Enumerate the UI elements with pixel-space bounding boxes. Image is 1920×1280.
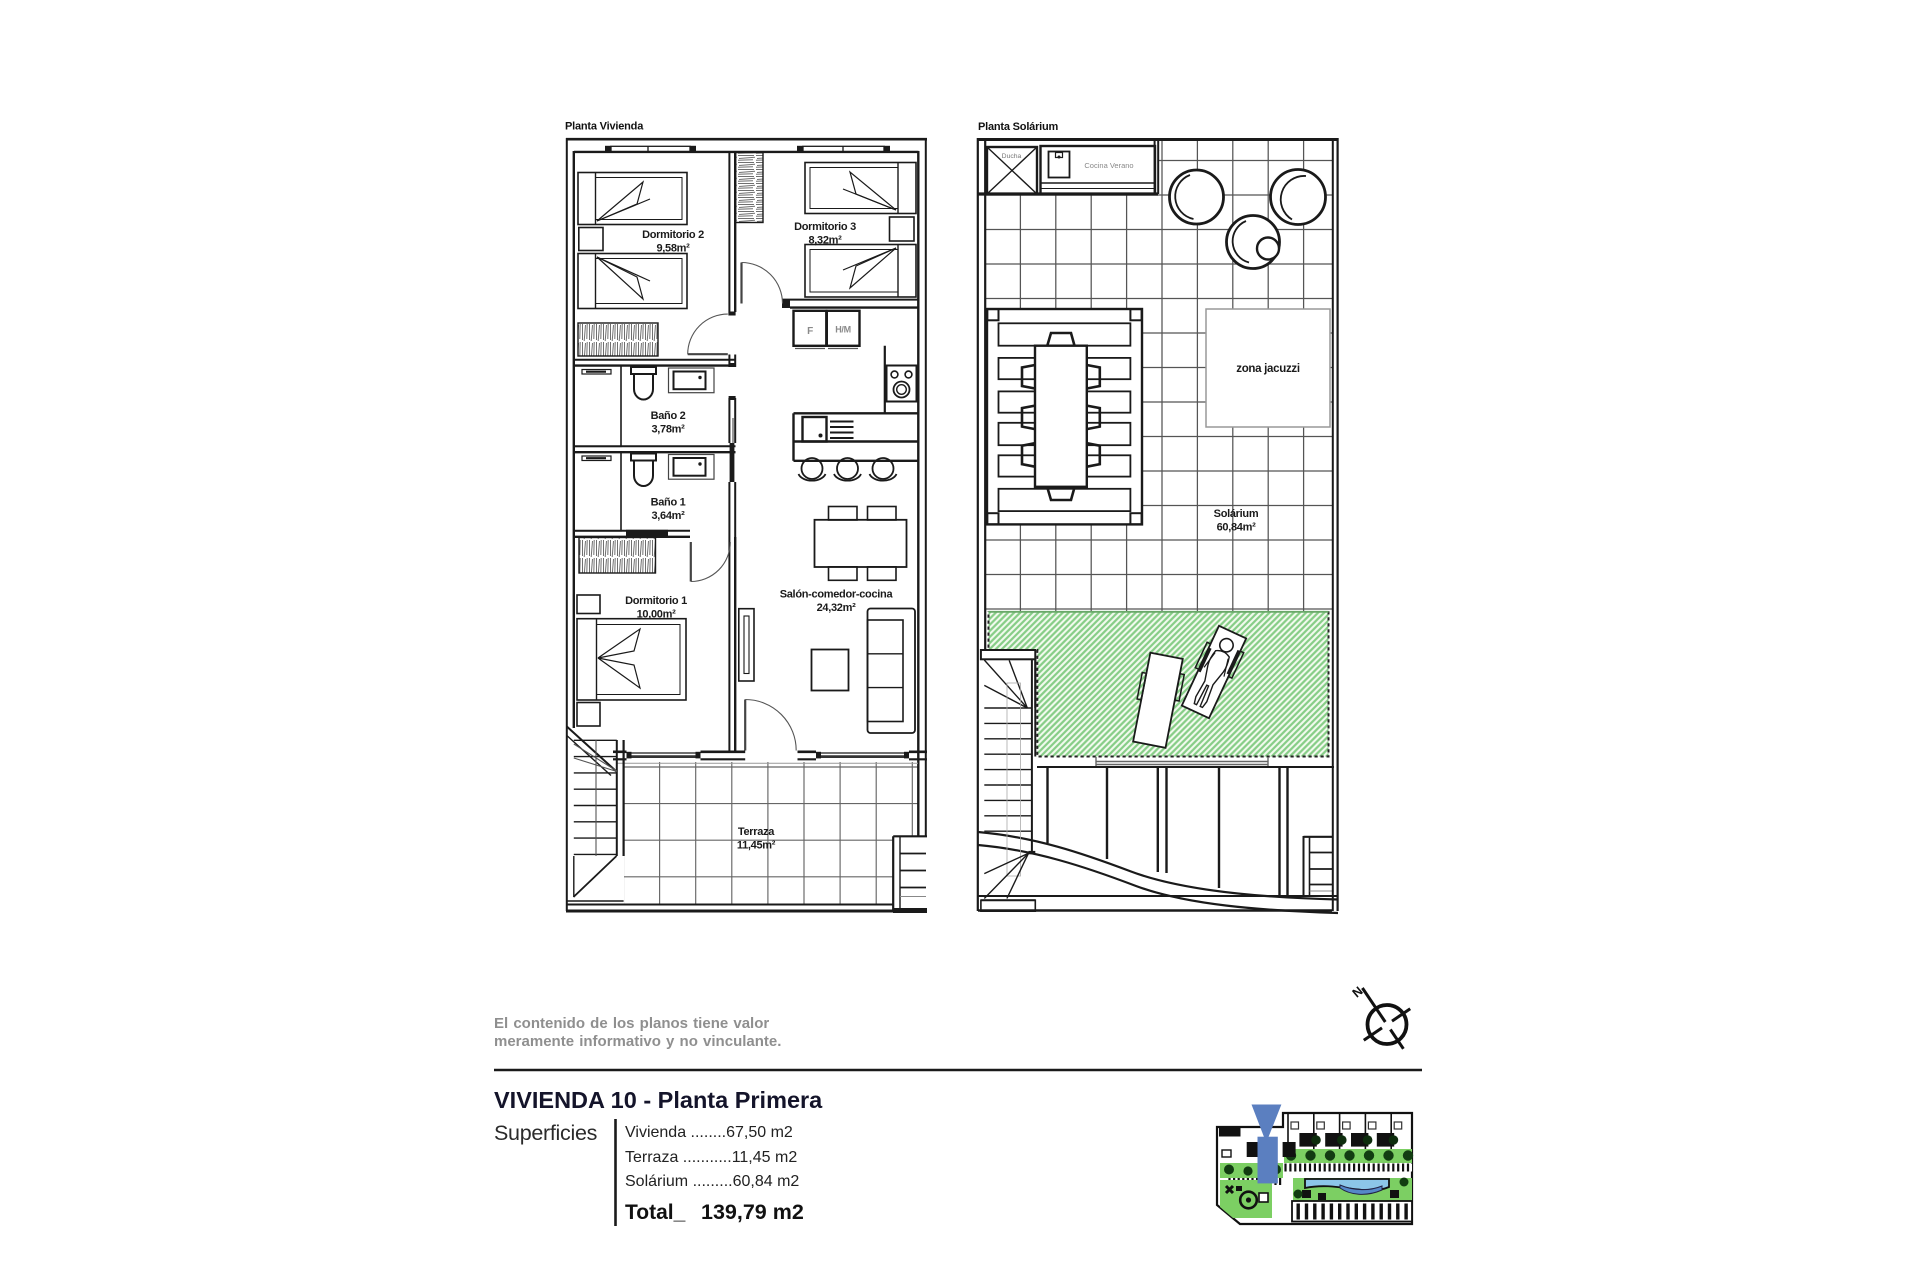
svg-text:9,58m²: 9,58m²	[656, 243, 690, 255]
svg-text:zona jacuzzi: zona jacuzzi	[1236, 363, 1300, 375]
svg-text:139,79 m2: 139,79 m2	[701, 1200, 804, 1224]
svg-text:F: F	[807, 326, 813, 337]
svg-text:Salón-comedor-cocina: Salón-comedor-cocina	[780, 589, 894, 601]
svg-text:24,32m²: 24,32m²	[817, 602, 857, 614]
svg-text:60,84m²: 60,84m²	[1217, 522, 1257, 534]
svg-text:VIVIENDA 10 - Planta Primera: VIVIENDA 10 - Planta Primera	[494, 1087, 823, 1113]
svg-text:H/M: H/M	[835, 325, 851, 335]
svg-text:Solárium: Solárium	[1214, 508, 1259, 520]
svg-text:Superficies: Superficies	[494, 1121, 597, 1145]
svg-text:Planta Vivienda: Planta Vivienda	[565, 121, 644, 133]
svg-text:Baño 2: Baño 2	[651, 410, 686, 422]
svg-text:Cocina Verano: Cocina Verano	[1084, 161, 1133, 170]
svg-text:3,64m²: 3,64m²	[651, 510, 685, 522]
svg-text:Dormitorio 1: Dormitorio 1	[625, 595, 687, 607]
svg-text:3,78m²: 3,78m²	[651, 424, 685, 436]
svg-text:Solárium .........60,84 m2: Solárium .........60,84 m2	[625, 1173, 799, 1190]
svg-text:10,00m²: 10,00m²	[637, 609, 677, 621]
svg-text:meramente informativo y no vin: meramente informativo y no vinculante.	[494, 1033, 781, 1050]
svg-text:11,45m²: 11,45m²	[737, 840, 776, 852]
svg-text:Dormitorio 3: Dormitorio 3	[794, 221, 856, 233]
svg-text:Dormitorio 2: Dormitorio 2	[642, 229, 704, 241]
svg-text:Vivienda ........67,50 m2: Vivienda ........67,50 m2	[625, 1124, 793, 1141]
svg-text:Terraza: Terraza	[738, 826, 775, 838]
svg-text:Baño 1: Baño 1	[651, 497, 686, 509]
svg-text:Ducha: Ducha	[1002, 153, 1022, 160]
svg-text:8,32m²: 8,32m²	[808, 235, 842, 247]
svg-text:El contenido de los planos tie: El contenido de los planos tiene valor	[494, 1015, 769, 1032]
svg-text:Terraza ...........11,45 m2: Terraza ...........11,45 m2	[625, 1149, 797, 1166]
svg-text:Planta Solárium: Planta Solárium	[978, 121, 1059, 133]
svg-text:Total_: Total_	[625, 1201, 686, 1224]
